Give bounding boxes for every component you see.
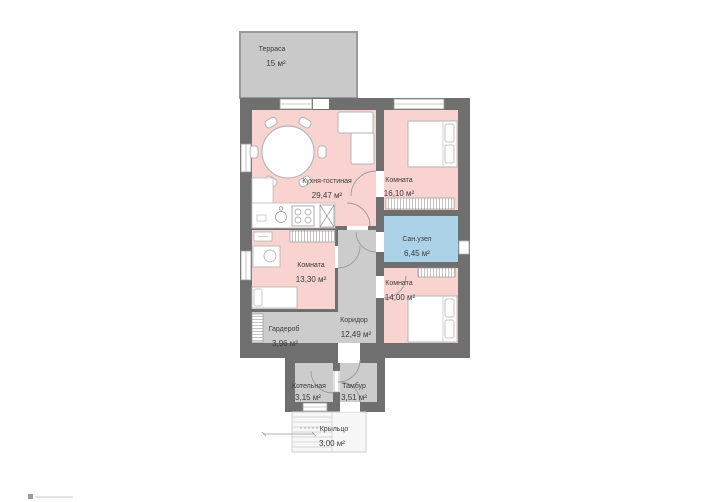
corridor-name: Коридор (340, 317, 368, 324)
bedroom2-door-opening (335, 246, 338, 268)
kitchen-left-window (241, 144, 251, 172)
bedroom2-name: Комната (297, 262, 325, 269)
kitchen-area: 29,47 м² (312, 191, 343, 200)
counter-item (257, 215, 266, 221)
bathroom-name: Сан.узел (402, 236, 431, 243)
boiler-bottom-window (303, 403, 327, 411)
watermark-logo (28, 494, 73, 499)
floor-plan-drawing: Терраса 15 м² Кухня-гостиная 29,47 м² Ко… (0, 0, 710, 502)
boiler-area: 3,15 м² (295, 393, 321, 402)
bedroom3-area: 14,00 м² (385, 293, 416, 302)
bedroom3-name: Комната (385, 280, 413, 287)
desk-chair (264, 250, 276, 262)
terrace-door-opening (313, 99, 329, 109)
porch-area: 3,00 м² (319, 439, 345, 448)
terrace-area: 15 м² (266, 59, 286, 68)
bedroom2-area: 13,30 м² (296, 275, 327, 284)
bedroom1-bed (408, 121, 457, 167)
bedroom2-wardrobe (290, 231, 335, 242)
bedroom2-left-window (241, 251, 251, 280)
bedroom3-bed (408, 296, 457, 342)
bathroom-door-opening (376, 232, 384, 252)
boiler-name: Котельная (292, 383, 326, 390)
dining-table (262, 126, 314, 178)
bedroom2-dresser (254, 232, 272, 241)
closet-wardrobe (252, 314, 263, 342)
boiler-door-leaf (334, 371, 339, 392)
bedroom3-wardrobe (418, 268, 455, 277)
floor-plan-canvas: Терраса 15 м² Кухня-гостиная 29,47 м² Ко… (0, 0, 710, 502)
bedroom3-door-opening (376, 276, 384, 298)
bedroom2-bed (252, 287, 297, 308)
kitchen-top-window (280, 99, 312, 109)
sink2-icon (320, 205, 334, 227)
vestibule-name: Тамбур (342, 382, 366, 390)
kitchen-name: Кухня-гостиная (302, 178, 352, 185)
corridor-vestibule-door-opening (338, 343, 360, 363)
bedroom2-desk (253, 246, 280, 267)
stove-icon (292, 206, 314, 226)
bedroom1-name: Комната (385, 177, 413, 184)
vestibule-area: 3,51 м² (341, 393, 367, 402)
terrace-name: Терраса (259, 46, 286, 53)
bathroom-area: 6,45 м² (404, 249, 430, 258)
bedroom1-wardrobe (386, 198, 454, 209)
closet-area: 3,96 м² (272, 339, 298, 348)
bedroom1-top-window (394, 99, 444, 109)
terrace-floor (240, 32, 357, 98)
bedroom1-area: 16,10 м² (384, 189, 415, 198)
kitchen-corridor-door-opening (347, 226, 368, 230)
porch-name: Крыльцо (320, 426, 349, 433)
corridor-area: 12,49 м² (341, 330, 372, 339)
porch (262, 412, 366, 452)
closet-name: Гардероб (269, 325, 300, 333)
bathroom-right-window (459, 241, 469, 254)
vestibule-porch-door-opening (340, 402, 360, 412)
bedroom1-door-opening (376, 171, 384, 197)
